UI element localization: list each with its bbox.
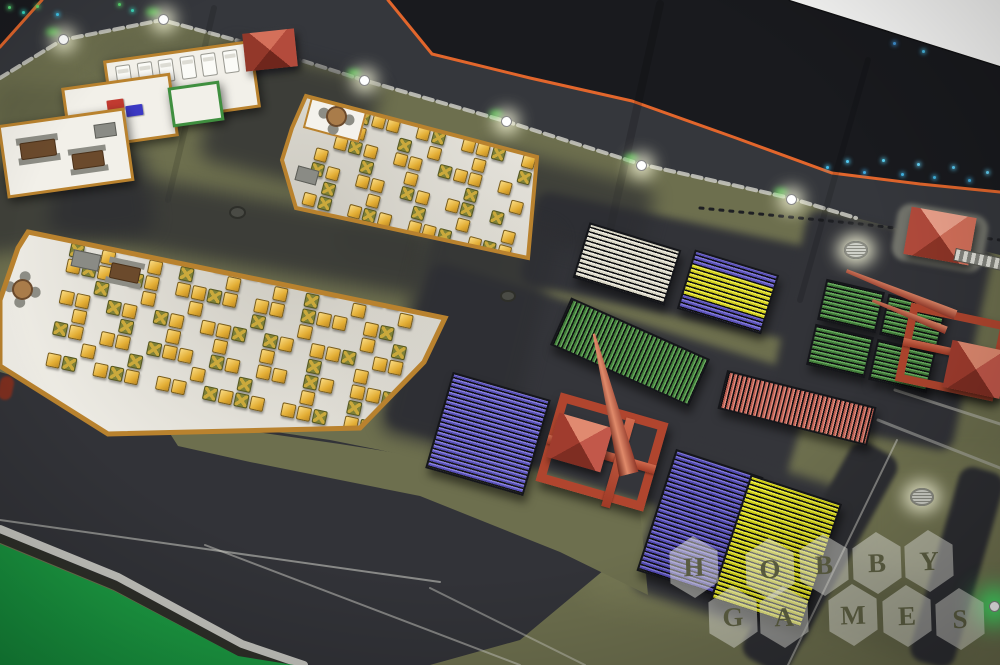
- distant-light: [131, 9, 134, 12]
- street-light: [786, 194, 797, 205]
- pyramid-roof: [242, 28, 298, 71]
- crate: [303, 293, 319, 309]
- crate: [520, 154, 536, 170]
- street-light: [501, 116, 512, 127]
- crate: [391, 344, 407, 360]
- crate: [359, 337, 375, 353]
- crate: [93, 281, 109, 297]
- crate: [202, 385, 218, 401]
- distant-light: [22, 11, 25, 14]
- crate: [350, 303, 366, 319]
- crate: [392, 152, 408, 168]
- watermark-letter: E: [897, 600, 916, 632]
- crate: [233, 392, 249, 408]
- crate: [218, 389, 234, 405]
- crate: [497, 180, 513, 196]
- crate: [353, 368, 369, 384]
- crate: [272, 286, 288, 302]
- crate: [80, 343, 96, 359]
- crate: [256, 364, 272, 380]
- crate: [516, 169, 532, 185]
- crate: [385, 294, 401, 310]
- distant-light: [922, 50, 925, 53]
- crate: [280, 402, 296, 418]
- crate: [407, 156, 423, 172]
- crate: [324, 166, 340, 182]
- crate: [361, 208, 377, 224]
- crate: [187, 301, 203, 317]
- crate: [430, 130, 446, 146]
- distant-light: [917, 163, 920, 166]
- crate: [146, 341, 162, 357]
- crate: [68, 324, 84, 340]
- crate: [463, 187, 479, 203]
- crate: [376, 212, 392, 228]
- crate: [452, 168, 468, 184]
- crate: [74, 293, 90, 309]
- distant-light: [863, 171, 866, 174]
- table-group: [71, 150, 105, 170]
- crate: [52, 321, 68, 337]
- bed: [179, 55, 197, 80]
- crate: [147, 259, 163, 275]
- crate: [92, 362, 108, 378]
- crate: [309, 343, 325, 359]
- bed: [200, 52, 218, 77]
- crate: [231, 326, 247, 342]
- crate: [237, 376, 253, 392]
- crate: [475, 142, 491, 158]
- crate: [490, 146, 506, 162]
- crate: [225, 276, 241, 292]
- street-light: [158, 14, 169, 25]
- distant-light: [56, 13, 59, 16]
- green-room: [167, 81, 224, 128]
- crate: [396, 137, 412, 153]
- distant-light: [118, 3, 121, 6]
- crate: [262, 333, 278, 349]
- crate: [370, 114, 386, 130]
- crate: [153, 310, 169, 326]
- distant-light: [826, 166, 829, 169]
- crate: [467, 172, 483, 188]
- crate: [313, 147, 329, 163]
- crate: [61, 356, 77, 372]
- crate: [190, 366, 206, 382]
- crate: [471, 157, 487, 173]
- lamp-green-flare: [347, 69, 361, 77]
- lamp-green-flare: [146, 8, 160, 16]
- crate: [278, 336, 294, 352]
- crate: [175, 282, 191, 298]
- crate: [362, 144, 378, 160]
- crate: [171, 379, 187, 395]
- crate: [489, 210, 505, 226]
- crate: [372, 356, 388, 372]
- watermark-letter: M: [840, 599, 867, 631]
- crate: [346, 204, 362, 220]
- distant-light: [893, 42, 896, 45]
- crate: [349, 384, 365, 400]
- crate: [455, 217, 471, 233]
- distant-light: [901, 173, 904, 176]
- crate: [410, 205, 426, 221]
- distant-light: [36, 5, 39, 8]
- lamp-green-flare: [774, 188, 788, 196]
- crate: [508, 199, 524, 215]
- crate: [385, 118, 401, 134]
- watermark-letter: B: [867, 547, 886, 579]
- distant-light: [952, 166, 955, 169]
- watermark-letter: B: [814, 549, 833, 581]
- crate: [115, 334, 131, 350]
- manhole-cover: [229, 206, 246, 219]
- lamp-green-flare: [46, 28, 60, 36]
- crate: [399, 186, 415, 202]
- crate: [460, 138, 476, 154]
- crate: [316, 196, 332, 212]
- watermark-letter: Y: [919, 545, 940, 577]
- crate: [224, 357, 240, 373]
- lamp-green-flare: [489, 110, 503, 118]
- crate: [71, 309, 87, 325]
- crate: [302, 374, 318, 390]
- crate: [209, 354, 225, 370]
- crate: [311, 409, 327, 425]
- crate: [346, 400, 362, 416]
- crate: [59, 290, 75, 306]
- bed: [221, 49, 239, 74]
- crate: [155, 375, 171, 391]
- crate: [325, 346, 341, 362]
- crate: [500, 229, 516, 245]
- crate: [318, 377, 334, 393]
- crate: [365, 193, 381, 209]
- watermark-letter: G: [722, 601, 744, 633]
- crate: [177, 347, 193, 363]
- crate: [444, 198, 460, 214]
- crate: [250, 314, 266, 330]
- distant-light: [846, 160, 849, 163]
- crate: [426, 145, 442, 161]
- crate: [271, 367, 287, 383]
- crate: [165, 329, 181, 345]
- crate: [106, 300, 122, 316]
- distant-light: [968, 179, 971, 182]
- crate: [269, 302, 285, 318]
- crate: [301, 192, 317, 208]
- watermark-letter: A: [774, 601, 795, 633]
- crate: [369, 290, 385, 306]
- crate: [168, 313, 184, 329]
- lamp-green-flare: [624, 154, 638, 162]
- crate: [299, 390, 315, 406]
- distant-light: [933, 176, 936, 179]
- distant-light: [8, 6, 11, 9]
- crate: [45, 352, 61, 368]
- crate: [253, 298, 269, 314]
- crate: [354, 287, 370, 303]
- crate: [316, 312, 332, 328]
- crate: [144, 275, 160, 291]
- street-light: [359, 75, 370, 86]
- crate: [369, 178, 385, 194]
- round-table: [10, 277, 35, 302]
- crate: [459, 202, 475, 218]
- crate: [306, 358, 322, 374]
- crate: [200, 320, 216, 336]
- table-group: [19, 138, 57, 160]
- crate: [296, 405, 312, 421]
- crate: [121, 303, 137, 319]
- street-light: [58, 34, 69, 45]
- manhole-cover: [844, 241, 868, 259]
- desk: [93, 122, 117, 139]
- crate: [191, 285, 207, 301]
- crate: [358, 419, 374, 435]
- crate: [206, 288, 222, 304]
- crate: [162, 344, 178, 360]
- crate: [259, 348, 275, 364]
- crate: [343, 415, 359, 431]
- edge-lamp: [989, 601, 1000, 612]
- crate: [124, 369, 140, 385]
- crate: [99, 331, 115, 347]
- floor-mat: [125, 104, 143, 117]
- crate: [108, 365, 124, 381]
- crate: [397, 312, 413, 328]
- distant-light: [986, 171, 989, 174]
- crate: [363, 321, 379, 337]
- crate: [215, 323, 231, 339]
- crate: [297, 324, 313, 340]
- crate: [365, 387, 381, 403]
- watermark-letter: H: [683, 551, 705, 583]
- crate: [212, 338, 228, 354]
- crate: [178, 266, 194, 282]
- crate: [320, 181, 336, 197]
- crate: [403, 171, 419, 187]
- crate: [358, 159, 374, 175]
- game-mat-photo: HOBBYGAMES: [0, 0, 1000, 665]
- distant-light: [882, 159, 885, 162]
- crate: [354, 174, 370, 190]
- crate: [340, 349, 356, 365]
- crate: [378, 325, 394, 341]
- crate: [300, 308, 316, 324]
- crate: [414, 190, 430, 206]
- watermark-letter: O: [759, 553, 781, 585]
- crate: [127, 353, 143, 369]
- crate: [415, 126, 431, 142]
- street-light: [636, 160, 647, 171]
- crate: [437, 164, 453, 180]
- manhole-cover: [500, 290, 516, 302]
- crate: [140, 291, 156, 307]
- crate: [387, 359, 403, 375]
- crate: [331, 315, 347, 331]
- manhole-cover: [910, 488, 934, 506]
- watermark-letter: S: [952, 603, 968, 635]
- crate: [118, 319, 134, 335]
- crate: [249, 395, 265, 411]
- crate: [222, 292, 238, 308]
